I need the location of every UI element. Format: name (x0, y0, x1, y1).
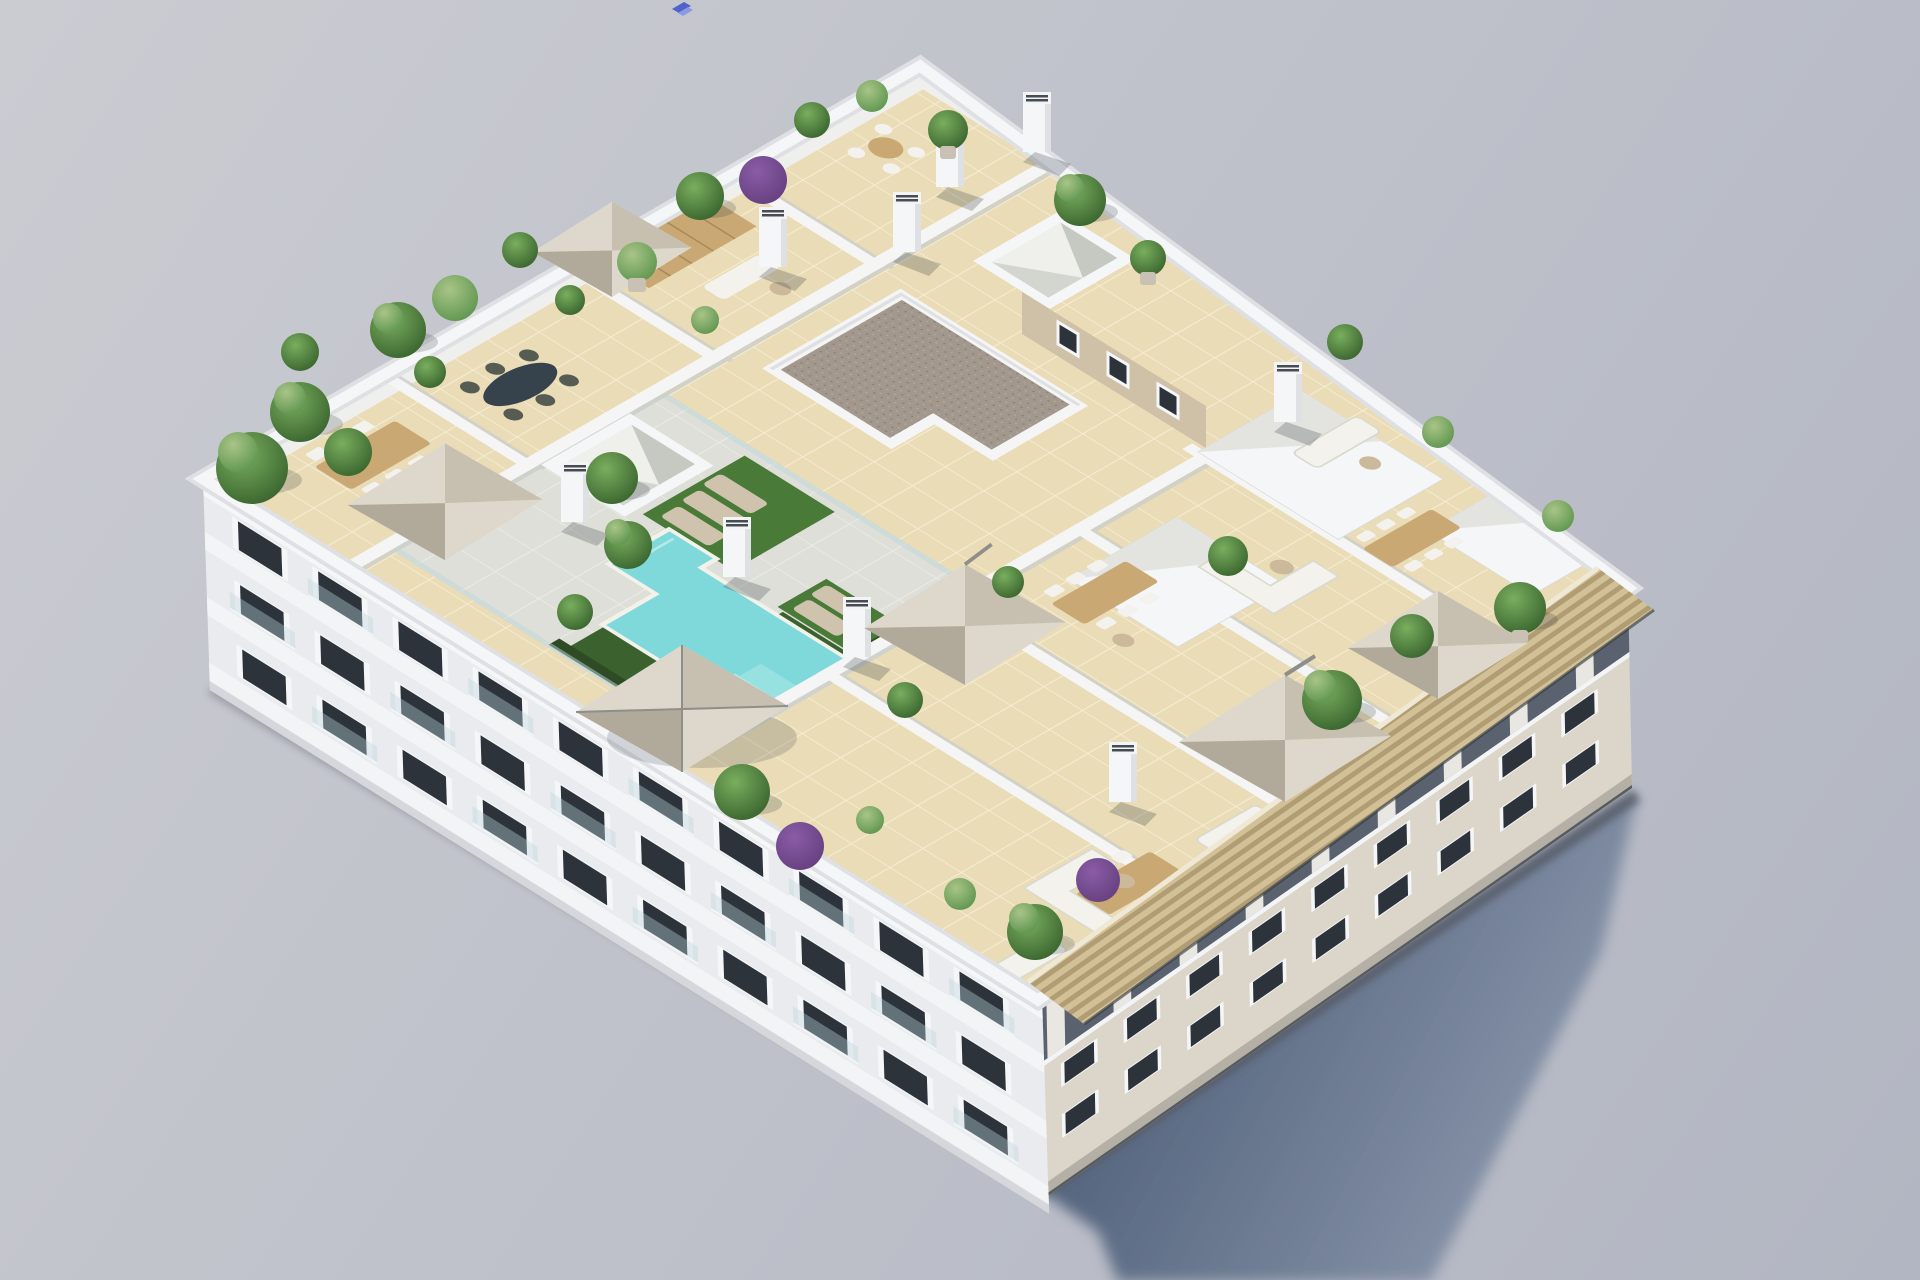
render-stage (0, 0, 1920, 1280)
architectural-render (0, 0, 1920, 1280)
